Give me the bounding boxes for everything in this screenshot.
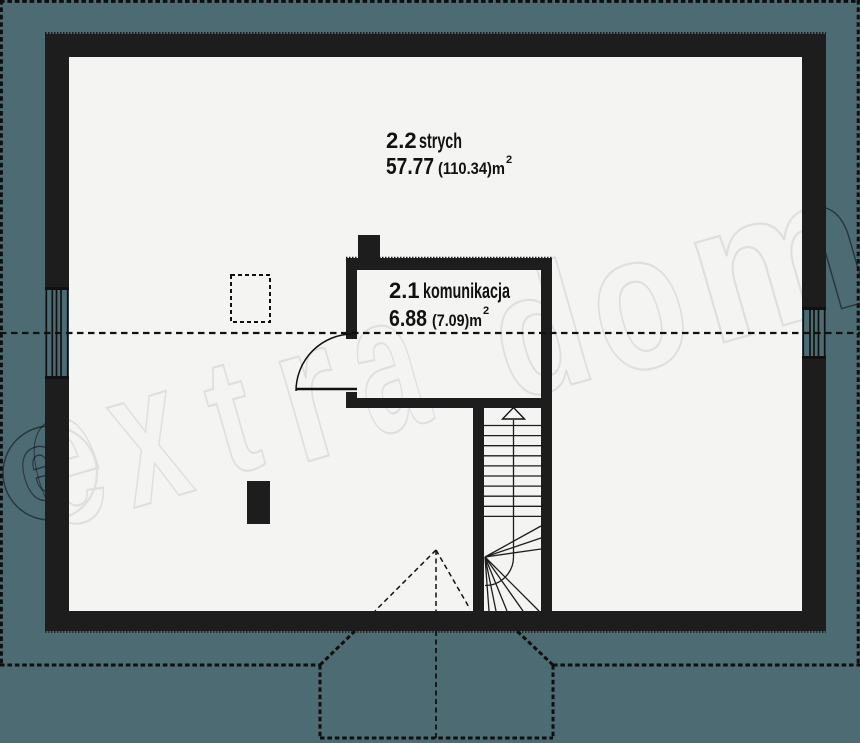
svg-text:komunikacja: komunikacja bbox=[423, 280, 510, 303]
svg-text:(7.09)m: (7.09)m bbox=[432, 311, 482, 330]
svg-text:2: 2 bbox=[483, 305, 489, 317]
svg-text:2: 2 bbox=[506, 154, 512, 166]
svg-text:2.2: 2.2 bbox=[386, 128, 417, 153]
svg-text:2.1: 2.1 bbox=[389, 278, 420, 303]
svg-text:strych: strych bbox=[419, 130, 462, 153]
svg-text:(110.34)m: (110.34)m bbox=[438, 159, 505, 178]
svg-text:6.88: 6.88 bbox=[389, 305, 427, 331]
svg-text:57.77: 57.77 bbox=[386, 153, 434, 179]
